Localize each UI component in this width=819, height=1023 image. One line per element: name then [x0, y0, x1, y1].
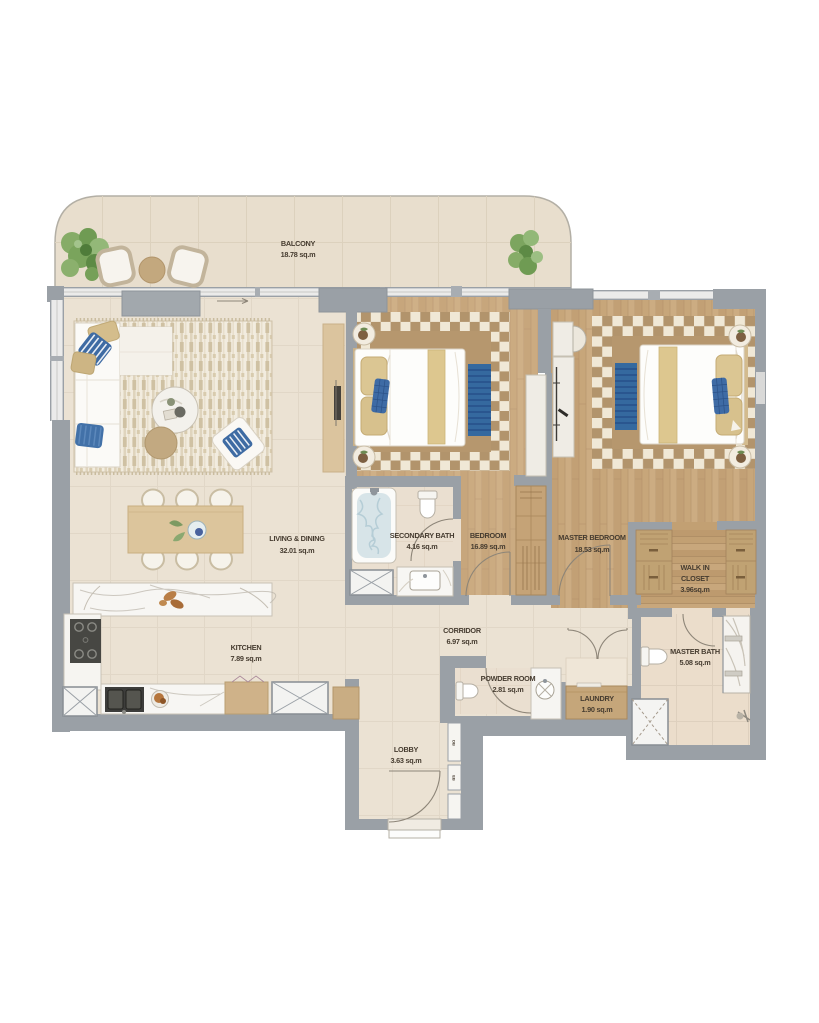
svg-text:BEDROOM: BEDROOM: [470, 531, 507, 540]
svg-text:18.53 sq.m: 18.53 sq.m: [575, 545, 611, 554]
svg-text:DB: DB: [452, 740, 457, 746]
svg-text:BALCONY: BALCONY: [281, 239, 316, 248]
svg-text:LIVING & DINING: LIVING & DINING: [269, 534, 325, 543]
svg-text:6.97 sq.m: 6.97 sq.m: [446, 637, 478, 646]
svg-text:1.90 sq.m: 1.90 sq.m: [581, 705, 613, 714]
svg-text:CORRIDOR: CORRIDOR: [443, 626, 482, 635]
svg-text:5.08 sq.m: 5.08 sq.m: [679, 658, 711, 667]
svg-text:LAUNDRY: LAUNDRY: [580, 694, 614, 703]
svg-text:2.81 sq.m: 2.81 sq.m: [492, 685, 524, 694]
svg-text:EB: EB: [452, 775, 457, 781]
svg-text:16.89 sq.m: 16.89 sq.m: [471, 542, 507, 551]
svg-text:CLOSET: CLOSET: [681, 574, 710, 583]
svg-text:MASTER BEDROOM: MASTER BEDROOM: [558, 533, 626, 542]
svg-text:KITCHEN: KITCHEN: [231, 643, 262, 652]
svg-text:4.16 sq.m: 4.16 sq.m: [406, 542, 438, 551]
svg-text:18.78 sq.m: 18.78 sq.m: [281, 250, 317, 259]
svg-text:WALK IN: WALK IN: [680, 563, 709, 572]
svg-text:3.96sq.m: 3.96sq.m: [680, 585, 710, 594]
svg-text:SECONDARY BATH: SECONDARY BATH: [390, 531, 454, 540]
svg-text:LOBBY: LOBBY: [394, 745, 419, 754]
svg-text:32.01 sq.m: 32.01 sq.m: [280, 546, 316, 555]
svg-text:POWDER ROOM: POWDER ROOM: [481, 674, 536, 683]
svg-text:3.63 sq.m: 3.63 sq.m: [390, 756, 422, 765]
svg-text:MASTER BATH: MASTER BATH: [670, 647, 720, 656]
svg-text:7.89 sq.m: 7.89 sq.m: [230, 654, 262, 663]
